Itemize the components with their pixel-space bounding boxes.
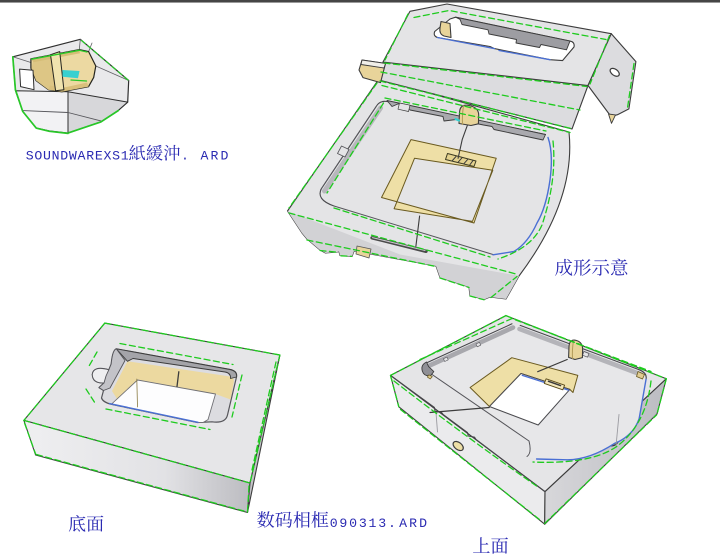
svg-text:ARD: ARD bbox=[201, 148, 231, 163]
svg-text:090313.: 090313. bbox=[330, 516, 398, 531]
svg-text:SOUNDWAREXS1: SOUNDWAREXS1 bbox=[26, 148, 130, 163]
svg-text:.: . bbox=[181, 148, 189, 163]
svg-text:ARD: ARD bbox=[399, 516, 429, 531]
